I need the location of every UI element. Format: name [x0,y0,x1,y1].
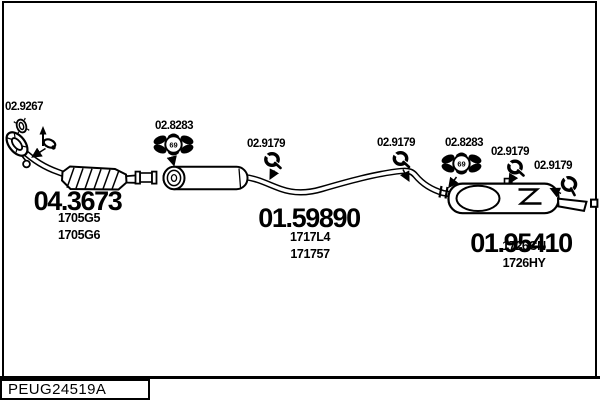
ref-hanger-2[interactable]: 02.9179 [366,137,426,149]
hanger-icon-1 [266,154,281,178]
diagram-reference: PEUG24519A [8,381,106,398]
mount-bracket-icon [33,126,56,157]
oe-catalyst-2: 1705G6 [44,228,114,242]
oe-catalyst-1: 1705G5 [44,211,114,225]
intermediate-pipe [244,171,452,195]
centre-silencer-body [164,167,248,189]
hanger-icon-2 [394,153,409,180]
hanger-icon-4 [560,176,580,195]
mount-badge-left: 69 [169,140,177,149]
oe-rear-silencer-2: 1726HY [489,256,559,270]
hanger-icon-3 [509,161,524,182]
diagram-reference-box: PEUG24519A [0,379,150,400]
rear-silencer-body [449,179,559,214]
clamp-icon [14,118,29,134]
mount-badge-right: 69 [457,159,465,168]
rubber-mount-icon-right: 69 [440,153,483,187]
ref-hanger-3[interactable]: 02.9179 [480,146,540,158]
ref-hanger-4[interactable]: 02.9179 [523,160,583,172]
ref-mount-left[interactable]: 02.8283 [144,120,204,132]
ref-front-clamp[interactable]: 02.9267 [5,101,55,113]
rubber-mount-icon-left: 69 [152,134,195,165]
oe-centre-silencer-2: 171757 [275,247,345,261]
pipe-coupling [126,172,157,184]
border-square-marker [591,200,597,207]
oe-rear-silencer-1: 1726CN [489,239,559,253]
ref-hanger-1[interactable]: 02.9179 [236,138,296,150]
oe-centre-silencer-1: 1717L4 [275,230,345,244]
front-flange [2,128,31,167]
exhaust-parts-diagram: 69 69 [0,0,600,400]
tail-pipe [558,199,587,211]
